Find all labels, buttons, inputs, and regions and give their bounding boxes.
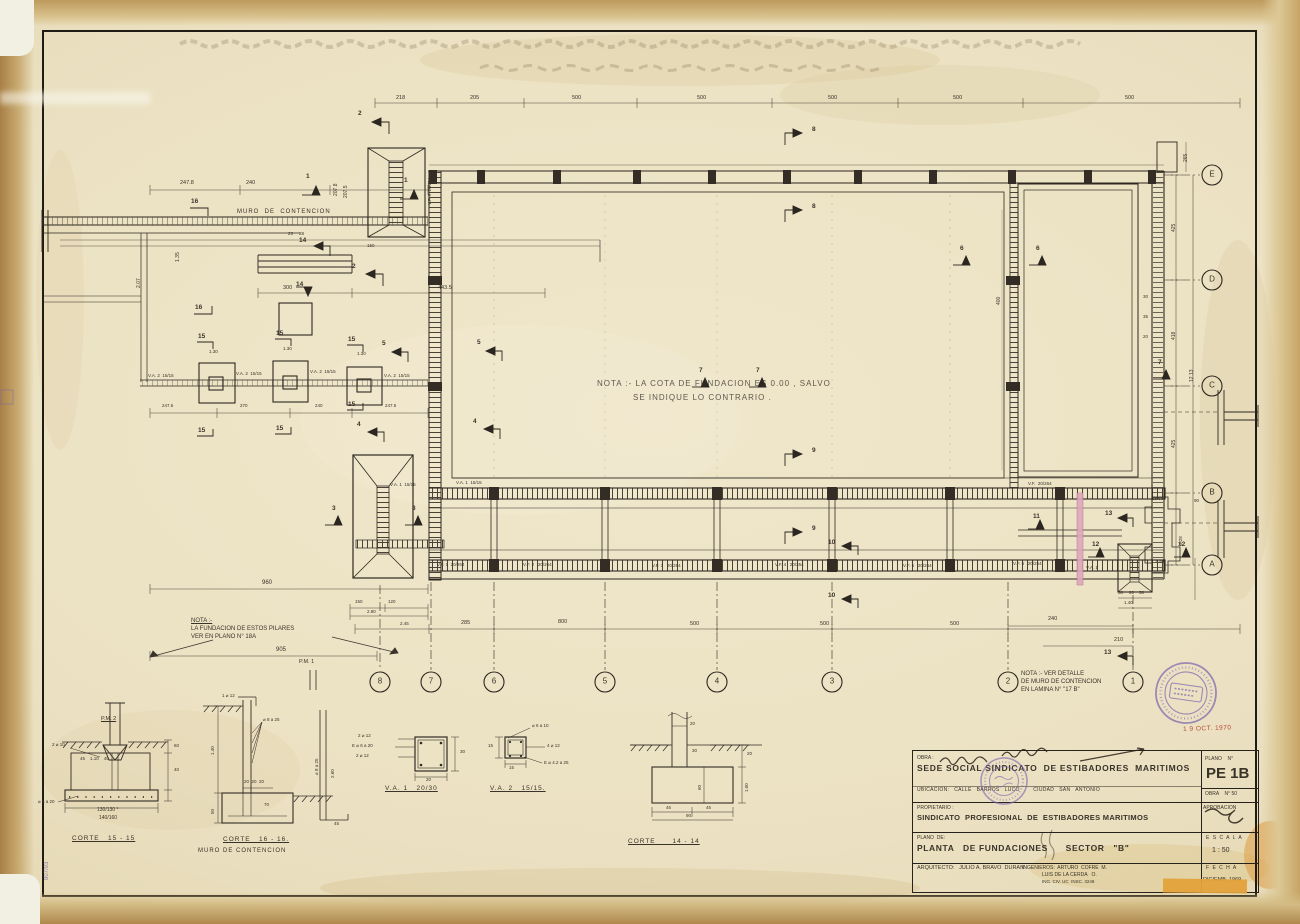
section-marker-14: 14 <box>299 238 306 245</box>
detail-title-corte15: CORTE 15 - 15 <box>72 836 135 843</box>
rebar-label: 2 ⌀ 10 <box>52 743 65 748</box>
blueprint-sheet: NOTA :- LA COTA DE FUNDACION ES 0.00 , S… <box>0 0 1300 924</box>
dim-label: 210 <box>1114 638 1123 644</box>
tb-obra-label: OBRA : <box>917 756 934 761</box>
beam-label-va2: V.A. 2 15/15 <box>384 374 410 379</box>
tb-ingeniero-2: LUIS DE LA CERDA O. <box>1042 873 1097 878</box>
dim-label: 130/130 * <box>97 808 118 813</box>
beam-label-vf6: V.F. 6 20/264 <box>1013 562 1042 567</box>
orange-sticker <box>1163 879 1247 894</box>
dim-label: 28.60 <box>1152 497 1163 502</box>
rebar-label: E ⌀ 4.2 a 25 <box>544 761 568 766</box>
dim-label: 300 <box>283 286 292 292</box>
grid-bubble-E: E <box>1209 171 1214 179</box>
section-marker-12: 12 <box>1092 542 1099 549</box>
dim-label: 207.8 <box>334 183 339 196</box>
dim-label: 30 <box>460 750 465 755</box>
detail-pm2-label: P.M. 2 <box>101 717 116 723</box>
tb-divider <box>913 832 1258 833</box>
tb-ingenieros: INGENIEROS: ARTURO COFRE M. <box>1022 866 1107 871</box>
tb-escala-label: E S C A L A <box>1206 836 1243 841</box>
dim-label: 500 <box>953 96 962 102</box>
tb-aprobacion-label: APROBACION <box>1203 806 1236 811</box>
tb-propietario-label: PROPIETARIO : <box>917 806 954 811</box>
dim-label: 20 <box>426 778 431 783</box>
grid-bubble-8: 8 <box>378 678 382 686</box>
section-marker-4: 4 <box>473 419 477 426</box>
tb-divider <box>1201 788 1258 789</box>
dim-label: 1.35 <box>176 252 181 262</box>
tb-plano-n: PE 1B <box>1206 766 1249 781</box>
dim-label: 45 <box>334 822 339 827</box>
dim-label: 425 <box>1172 224 1177 232</box>
grid-bubble-C: C <box>1209 382 1215 390</box>
grid-bubble-4: 4 <box>715 678 719 686</box>
note-cota-2: SE INDIQUE LO CONTRARIO . <box>633 394 772 402</box>
section-marker-7: 7 <box>756 368 760 375</box>
dim-label: 140/160 <box>99 816 117 821</box>
grid-bubble-6: 6 <box>492 678 496 686</box>
rebar-label: ⌀ 8 a 25 <box>263 718 279 723</box>
section-marker-7: 7 <box>699 368 703 375</box>
tb-divider <box>913 863 1258 864</box>
dim-label: 60 <box>698 785 703 790</box>
tb-propietario: SINDICATO PROFESIONAL DE ESTIBADORES MAR… <box>917 814 1148 822</box>
section-marker-8: 8 <box>812 127 816 134</box>
dim-label: 500 <box>1125 96 1134 102</box>
dim-label: 30 <box>692 749 697 754</box>
paper-corner-bl <box>0 874 40 924</box>
scan-streak <box>0 92 150 104</box>
dim-label: 20 <box>1143 335 1148 340</box>
dim-label: 240 <box>1048 617 1057 623</box>
dim-label: 285 <box>461 621 470 627</box>
dim-label: 247.8 <box>180 181 194 187</box>
section-marker-14: 14 <box>296 282 303 289</box>
dim-label: 265 <box>1184 154 1189 162</box>
dim-label: 2.07 <box>137 278 142 288</box>
tb-obra-n: OBRA N° 50 <box>1205 792 1237 797</box>
section-marker-16: 16 <box>191 199 198 206</box>
dim-label: 2.80 <box>367 610 376 615</box>
dim-label: 1.30 <box>357 352 366 357</box>
detail-subtitle-muro: MURO DE CONTENCION <box>198 848 286 854</box>
dim-label: 90 <box>686 814 691 819</box>
dim-label: 45 <box>666 806 671 811</box>
grid-bubble-7: 7 <box>429 678 433 686</box>
beam-label-vf4: V.F. 4 20/264 <box>775 563 804 568</box>
tb-obra-line: SEDE SOCIAL SINDICATO DE ESTIBADORES MAR… <box>917 764 1190 773</box>
note-muro-2: DE MURO DE CONTENCION <box>1021 679 1101 685</box>
dim-label: 400 <box>997 297 1002 305</box>
beam-label-va1: V.A. 1 15/15 <box>390 483 416 488</box>
detail-title-corte16: CORTE 16 - 16. <box>223 837 289 844</box>
dim-label: 45 1.10 45 <box>80 757 109 762</box>
beam-label-va1: V.A. 1 15/15 <box>456 481 482 486</box>
rebar-label: 4 ⌀ 12 <box>547 744 560 749</box>
section-marker-1: 1 <box>404 178 408 185</box>
tb-escala: 1 : 50 <box>1212 847 1230 854</box>
dim-label: 2.45 <box>400 622 409 627</box>
paper-corner-tl <box>0 0 34 56</box>
rebar-label: ⌀ 6 a 20 <box>38 800 54 805</box>
section-marker-9: 9 <box>812 526 816 533</box>
beam-label-vf2: V.F. 2 20/264 <box>523 563 552 568</box>
grid-bubble-5: 5 <box>603 678 607 686</box>
dim-label: 23 <box>288 232 293 237</box>
tb-divider <box>1201 751 1202 892</box>
section-marker-5: 5 <box>382 341 386 348</box>
dim-label: 240 <box>315 404 323 409</box>
section-marker-1: 1 <box>306 174 310 181</box>
dim-label: 1.30 <box>209 350 218 355</box>
dim-label: 28 <box>299 232 304 237</box>
dim-label: 60 <box>174 744 179 749</box>
dim-label: 425 <box>1172 440 1177 448</box>
dim-label: 30 <box>1143 295 1148 300</box>
section-marker-2: 2 <box>352 264 356 271</box>
rebar-label: ⌀ 6 a 10 <box>532 724 548 729</box>
dim-label: 20 20 20 <box>244 780 264 785</box>
beam-label-va2: V.A. 2 15/15 <box>236 372 262 377</box>
section-marker-8: 8 <box>812 204 816 211</box>
beam-label-vf1: V.F. 1 20/264 <box>437 563 464 568</box>
beam-label-va2: V.A. 2 15/15 <box>310 370 336 375</box>
dim-label: 150 <box>367 244 375 249</box>
dim-label: 500 <box>572 96 581 102</box>
dim-label: 240 <box>246 181 255 187</box>
tb-plano-n-label: PLANO N° <box>1205 757 1233 762</box>
detail-title-va1: V.A. 1 20/30 <box>385 786 438 793</box>
section-marker-5: 5 <box>477 340 481 347</box>
section-marker-13: 13 <box>1105 511 1112 518</box>
grid-bubble-D: D <box>1209 276 1215 284</box>
section-marker-9: 9 <box>812 448 816 455</box>
margin-mark: 807/93 <box>44 862 50 880</box>
detail-corte-14 <box>630 712 762 820</box>
dim-label: 150 <box>355 600 363 605</box>
dim-label: 247.5 <box>385 404 396 409</box>
grid-bubble-1: 1 <box>1131 678 1135 686</box>
dim-label: 960 <box>262 580 272 586</box>
dim-label: 3.28 <box>1179 536 1184 545</box>
dim-label: 800 <box>558 620 567 626</box>
dim-label: 500 <box>828 96 837 102</box>
dim-label: 90 <box>1194 499 1199 504</box>
section-marker-15: 15 <box>198 334 205 341</box>
section-marker-3: 3 <box>412 506 416 513</box>
dim-label: 418 <box>1172 332 1177 340</box>
beam-label-vf5: V.F. 5 20/264 <box>903 564 932 569</box>
section-marker-15: 15 <box>198 428 205 435</box>
dim-label: 70 <box>264 803 269 808</box>
beam-label-va1: V.A. 1 <box>1086 566 1098 571</box>
tb-plano-de: PLANTA DE FUNDACIONES SECTOR "B" <box>917 844 1129 853</box>
note-muro-3: EN LAMINA N° "17 B" <box>1021 687 1080 693</box>
beam-label-va2: V.A. 2 15/15 <box>148 374 174 379</box>
muro-contencion-label: MURO DE CONTENCION <box>237 209 331 215</box>
dim-label: 500 <box>950 622 959 628</box>
pm1-mark <box>310 670 316 690</box>
dim-label: 500 <box>690 622 699 628</box>
dim-label: 205 <box>470 96 479 102</box>
section-marker-7: 7 <box>1158 360 1162 367</box>
section-marker-6: 6 <box>960 246 964 253</box>
dim-label: 905 <box>276 647 286 653</box>
section-marker-15: 15 <box>276 426 283 433</box>
beam-label-vf3: V.F. 3 20/264 <box>652 564 681 569</box>
beam-label-vf9: V.F. 9 20/264 <box>428 178 433 205</box>
dim-label: 1.00 <box>745 783 750 792</box>
tb-arquitecto: ARQUITECTO: JULIO A. BRAVO DURAN <box>917 866 1024 872</box>
detail-va1 <box>395 737 459 781</box>
section-marker-13: 13 <box>1104 650 1111 657</box>
dim-label: 218 <box>396 96 405 102</box>
note-pilares-title: NOTA :- <box>191 618 212 624</box>
dim-label: 2.60 <box>331 769 336 778</box>
dim-label: 247.5 <box>162 404 173 409</box>
grid-bubble-B: B <box>1209 489 1214 497</box>
section-marker-15: 15 <box>276 331 283 338</box>
section-marker-11: 11 <box>1033 514 1040 521</box>
dim-label: 1.40 <box>211 746 216 755</box>
dim-label: 443.5 <box>438 286 452 292</box>
rebar-label: 2 ⌀ 12 <box>358 734 371 739</box>
dim-label: 270 <box>240 404 248 409</box>
rebar-label: E ⌀ 6 a 20 <box>352 744 373 749</box>
dim-label: 45 <box>706 806 711 811</box>
note-pilares-2: VER EN PLANO N° 18A <box>191 634 256 640</box>
detail-title-corte14: CORTE 14 - 14 <box>628 839 700 846</box>
dim-label: 15 <box>488 744 493 749</box>
rebar-label: 2 ⌀ 12 <box>356 754 369 759</box>
dim-label: 35 <box>1143 315 1148 320</box>
tb-fecha-label: F E C H A <box>1206 866 1237 871</box>
dim-label: 20 <box>747 752 752 757</box>
dim-label: 58 <box>1139 591 1144 596</box>
dim-label: 1.40 <box>1124 601 1133 606</box>
section-marker-10: 10 <box>828 540 835 547</box>
rebar-label: 1 ⌀ 12 <box>222 694 235 699</box>
dim-label: 207.5 <box>344 185 349 198</box>
section-marker-15: 15 <box>348 337 355 344</box>
dim-label: 15 <box>509 766 514 771</box>
pm1-label: P.M. 1 <box>299 660 314 666</box>
grid-bubble-2: 2 <box>1006 678 1010 686</box>
dim-label: 500 <box>697 96 706 102</box>
tb-plano-de-label: PLANO DE: <box>917 836 945 841</box>
detail-title-va2: V.A. 2 15/15. <box>490 786 546 793</box>
tb-ubicacion: UBICACION: CALLE BARROS LUCO CIUDAD SAN … <box>917 788 1100 793</box>
dim-label: 1.40 <box>1155 560 1164 565</box>
dim-label: 58 <box>1118 591 1123 596</box>
note-cota: NOTA :- LA COTA DE FUNDACION ES 0.00 , S… <box>597 380 831 388</box>
beam-label-vf: V.F. 20/264 <box>1028 482 1052 487</box>
tb-ingeniero-insc: ING. CIV. UC INSC. 3249 <box>1042 880 1094 885</box>
section-marker-16: 16 <box>195 305 202 312</box>
section-marker-4: 4 <box>357 422 361 429</box>
dim-label: 1.30 <box>283 347 292 352</box>
detail-va2 <box>495 728 545 768</box>
dim-label: 20 <box>690 722 695 727</box>
dim-label: 12.13 <box>1190 369 1195 382</box>
dim-label: 120 <box>388 600 396 605</box>
tb-divider <box>913 802 1258 803</box>
note-pilares: LA FUNDACION DE ESTOS PILARES <box>191 626 294 632</box>
section-marker-2: 2 <box>358 111 362 118</box>
dim-label: 20 <box>1129 591 1134 596</box>
note-arrows <box>150 637 398 657</box>
dim-label: 40 <box>174 768 179 773</box>
section-marker-15: 15 <box>348 402 355 409</box>
grid-bubble-A: A <box>1209 561 1214 569</box>
section-marker-3: 3 <box>332 506 336 513</box>
section-marker-6: 6 <box>1036 246 1040 253</box>
grid-bubble-3: 3 <box>830 678 834 686</box>
section-marker-10: 10 <box>828 593 835 600</box>
note-muro: NOTA :- VER DETALLE <box>1021 671 1084 677</box>
dim-label: 50 <box>211 809 216 814</box>
dim-label: 500 <box>820 622 829 628</box>
rebar-label: ⌀ 8 a 25 <box>315 759 320 775</box>
